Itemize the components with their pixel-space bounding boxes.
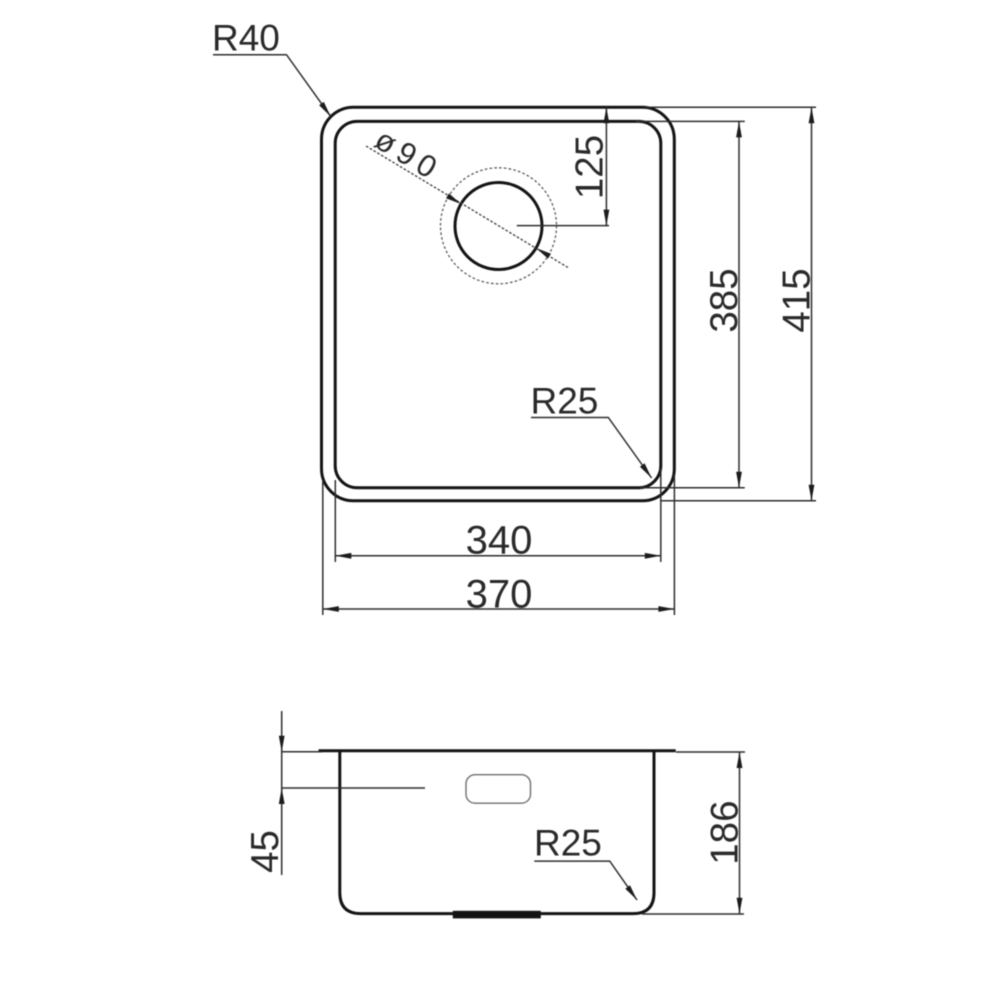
svg-text:R40: R40 bbox=[212, 18, 280, 59]
svg-text:415: 415 bbox=[776, 268, 819, 332]
svg-text:385: 385 bbox=[703, 268, 746, 332]
svg-text:R25: R25 bbox=[534, 823, 602, 864]
svg-text:R25: R25 bbox=[531, 381, 599, 422]
svg-text:125: 125 bbox=[569, 135, 612, 199]
svg-text:45: 45 bbox=[244, 830, 287, 873]
svg-text:340: 340 bbox=[466, 519, 533, 563]
svg-text:186: 186 bbox=[704, 800, 747, 864]
svg-text:370: 370 bbox=[466, 573, 533, 617]
